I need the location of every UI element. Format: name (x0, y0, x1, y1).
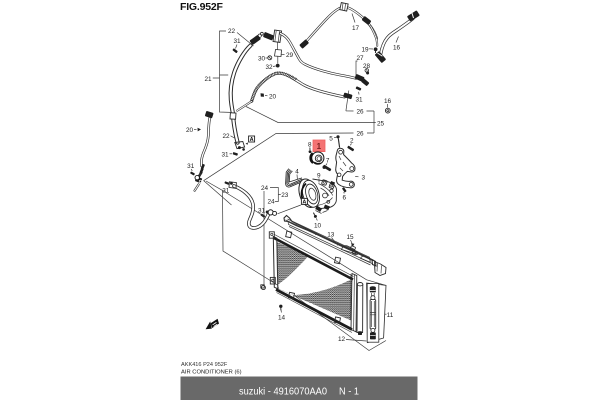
svg-text:A: A (302, 199, 306, 205)
svg-text:23: 23 (281, 192, 289, 199)
svg-text:25: 25 (377, 121, 385, 128)
svg-text:4: 4 (295, 169, 299, 176)
svg-text:AIR CONDITIONER (6): AIR CONDITIONER (6) (181, 370, 242, 376)
svg-text:20: 20 (186, 127, 194, 134)
svg-text:31: 31 (221, 152, 229, 159)
svg-text:12: 12 (338, 336, 346, 343)
svg-text:29: 29 (286, 52, 294, 59)
svg-text:22: 22 (222, 133, 230, 140)
svg-text:22: 22 (228, 28, 236, 35)
svg-text:3: 3 (362, 175, 366, 182)
svg-text:7: 7 (326, 158, 330, 165)
svg-text:16: 16 (384, 98, 392, 105)
svg-text:10: 10 (314, 223, 322, 230)
svg-text:16: 16 (393, 45, 401, 52)
svg-text:31: 31 (187, 163, 195, 170)
svg-text:26: 26 (356, 109, 364, 116)
svg-text:21: 21 (204, 76, 212, 83)
svg-text:14: 14 (278, 315, 286, 322)
svg-text:31: 31 (233, 38, 241, 45)
svg-text:8: 8 (308, 142, 312, 149)
svg-text:19: 19 (361, 47, 369, 54)
svg-text:FIG.952F: FIG.952F (180, 1, 224, 13)
svg-text:suzuki - 4916070AA0: suzuki - 4916070AA0 (239, 387, 327, 398)
svg-text:31: 31 (355, 97, 363, 104)
svg-text:17: 17 (352, 25, 360, 32)
svg-text:13: 13 (327, 232, 335, 239)
svg-text:11: 11 (387, 312, 394, 319)
svg-text:5: 5 (329, 136, 333, 143)
svg-text:2: 2 (350, 138, 354, 145)
svg-text:20: 20 (269, 94, 277, 101)
svg-text:A: A (250, 137, 254, 143)
svg-text:9: 9 (317, 173, 321, 180)
svg-text:32: 32 (265, 64, 273, 71)
svg-text:30: 30 (258, 56, 266, 63)
svg-text:27: 27 (356, 55, 364, 62)
svg-text:24: 24 (267, 199, 275, 206)
svg-text:AKK416 P24 952F: AKK416 P24 952F (181, 362, 228, 368)
svg-text:N - 1: N - 1 (339, 387, 359, 398)
svg-text:26: 26 (356, 131, 364, 138)
svg-text:6: 6 (343, 195, 347, 202)
svg-text:15: 15 (346, 234, 354, 241)
svg-text:1: 1 (317, 142, 322, 151)
svg-text:24: 24 (261, 185, 269, 192)
